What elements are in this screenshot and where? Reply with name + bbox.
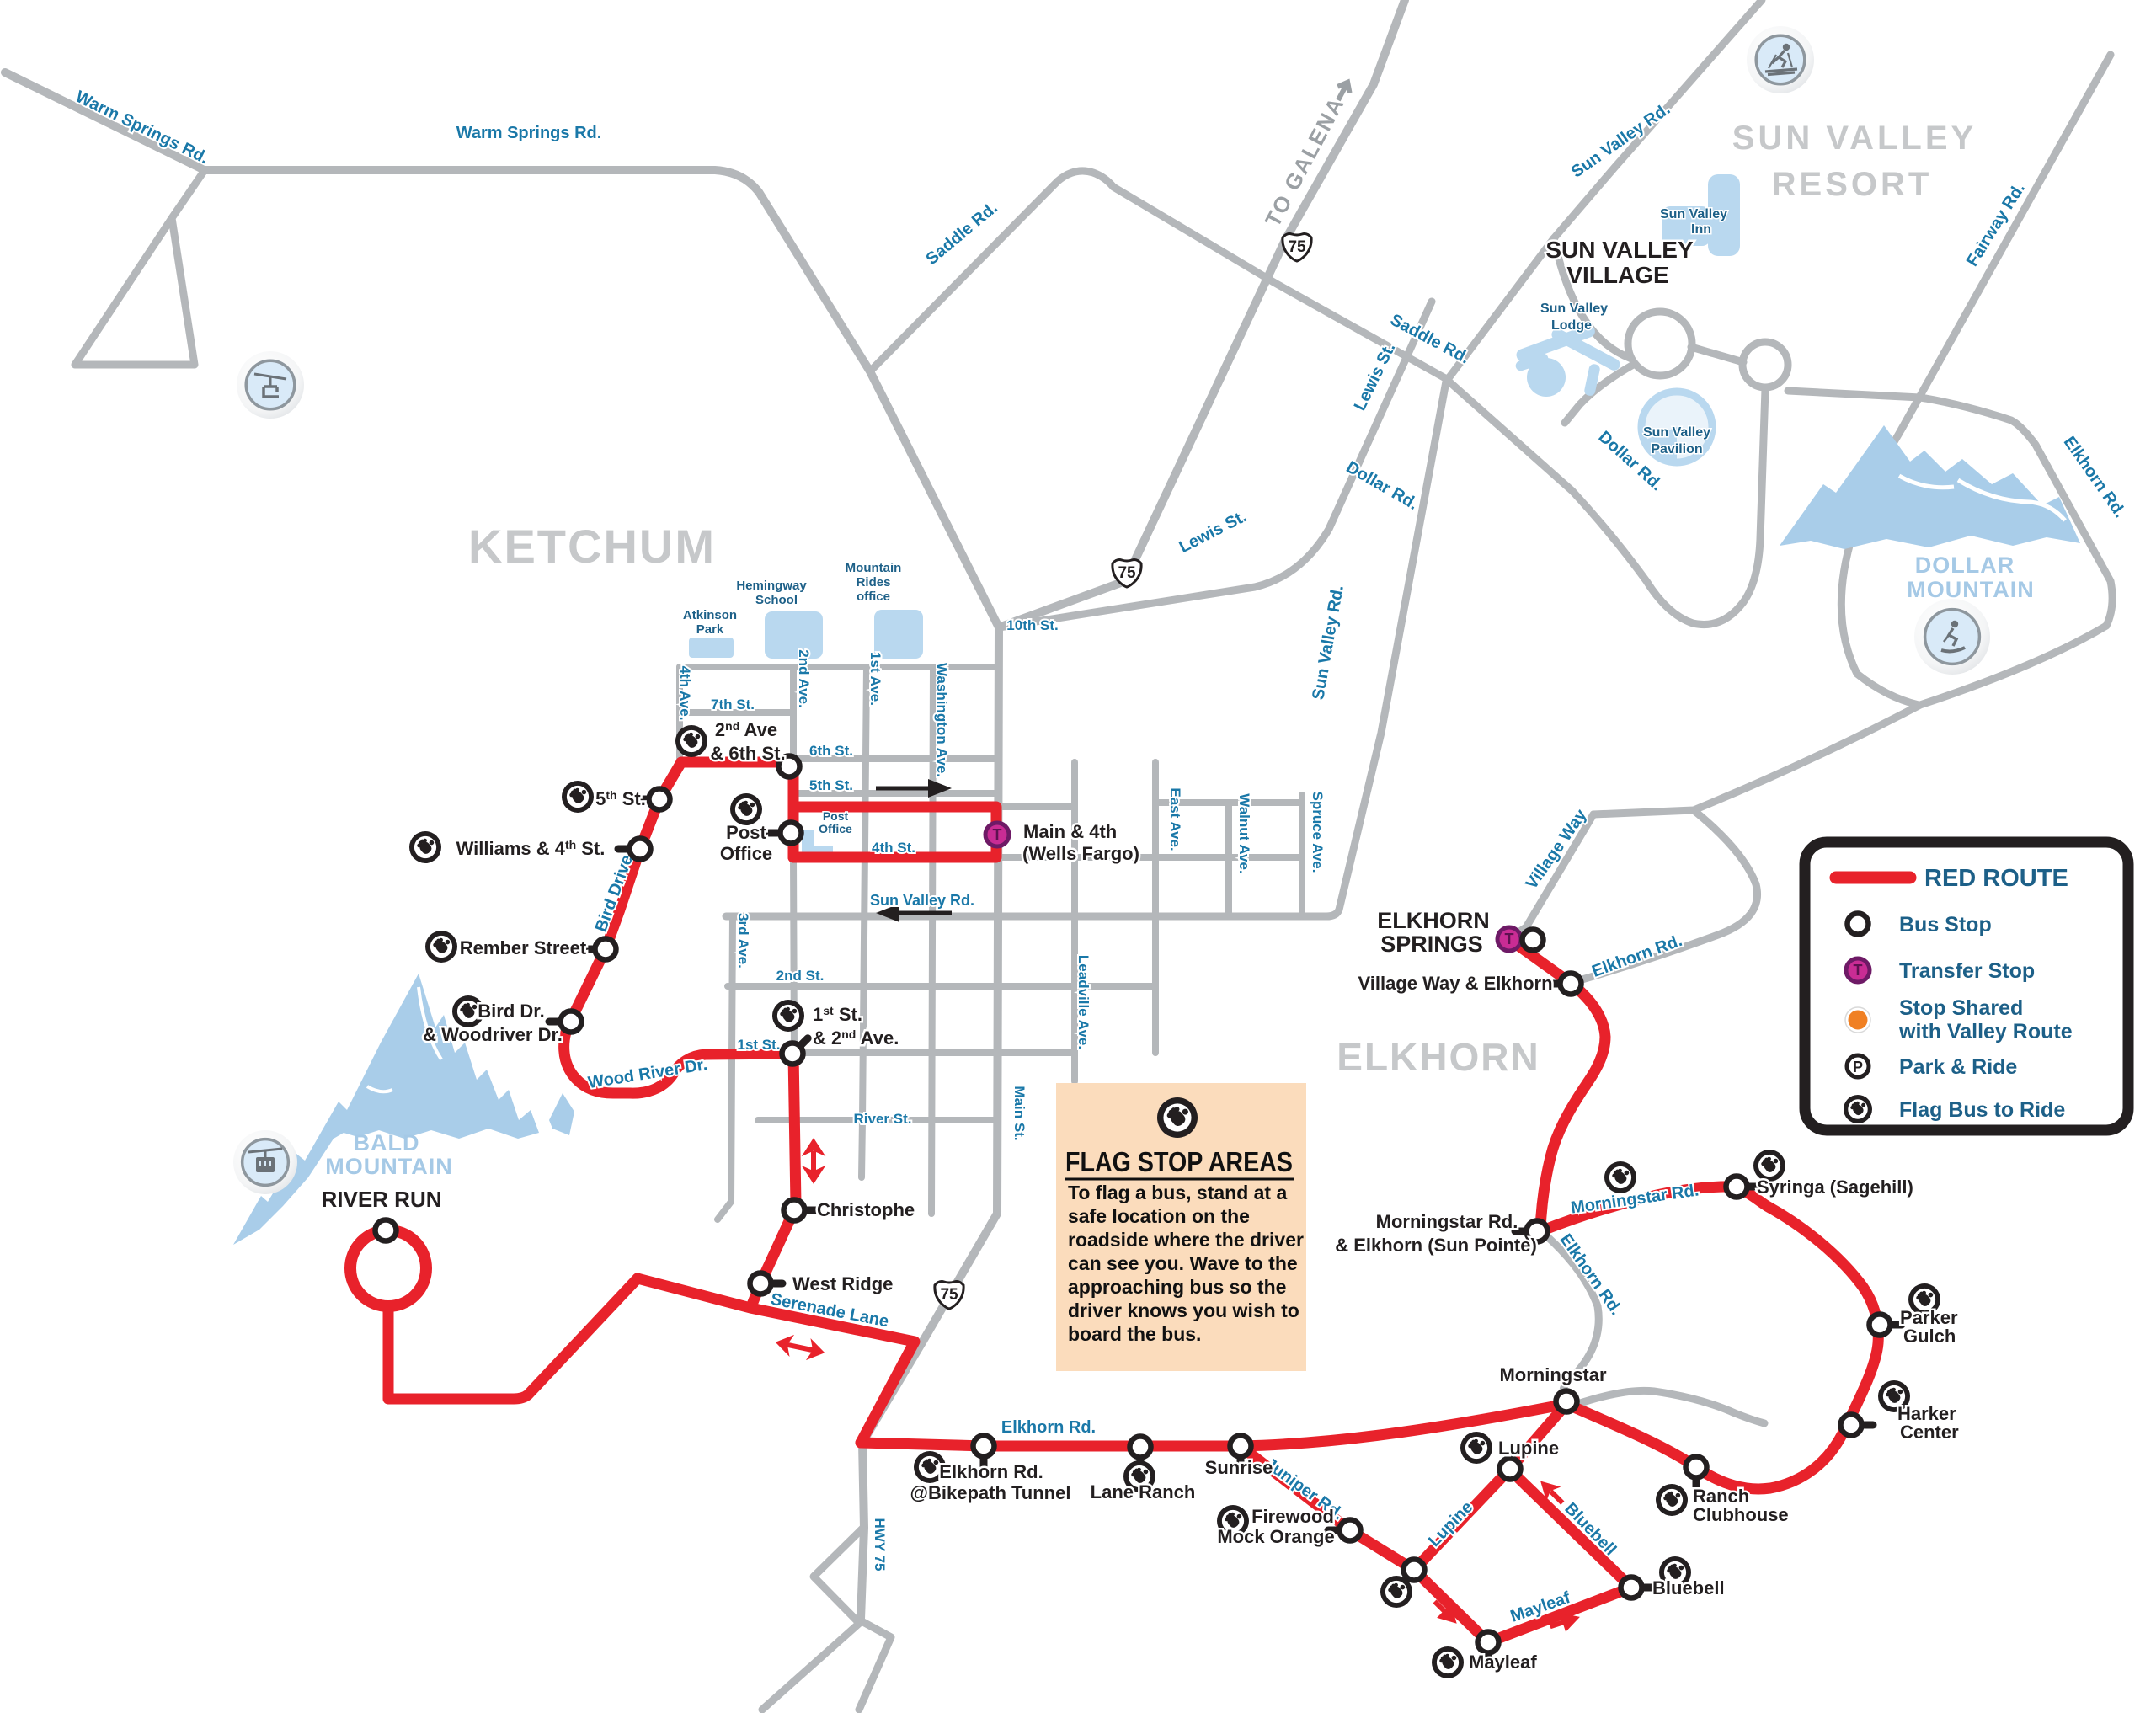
svg-text:roadside where the driver: roadside where the driver bbox=[1068, 1229, 1304, 1251]
svg-text:T: T bbox=[993, 826, 1002, 843]
svg-text:75: 75 bbox=[940, 1286, 958, 1304]
svg-text:Christophe: Christophe bbox=[817, 1199, 915, 1220]
svg-text:Inn: Inn bbox=[1691, 222, 1711, 237]
svg-text:T: T bbox=[1505, 931, 1514, 947]
svg-text:with Valley Route: with Valley Route bbox=[1898, 1020, 2073, 1043]
svg-text:BALD: BALD bbox=[354, 1130, 420, 1155]
svg-text:3rd Ave.: 3rd Ave. bbox=[735, 913, 751, 969]
svg-text:Lane Ranch: Lane Ranch bbox=[1091, 1481, 1196, 1502]
svg-text:Spruce Ave.: Spruce Ave. bbox=[1310, 791, 1326, 873]
svg-text:MOUNTAIN: MOUNTAIN bbox=[325, 1154, 452, 1179]
svg-text:Morningstar Rd.: Morningstar Rd. bbox=[1376, 1211, 1518, 1232]
svg-text:& 2nd Ave.: & 2nd Ave. bbox=[813, 1027, 899, 1049]
svg-text:Main St.: Main St. bbox=[1011, 1086, 1027, 1140]
svg-text:75: 75 bbox=[1118, 564, 1136, 582]
svg-text:2nd St.: 2nd St. bbox=[776, 968, 825, 984]
svg-text:Mock Orange: Mock Orange bbox=[1217, 1526, 1334, 1547]
svg-text:board the bus.: board the bus. bbox=[1068, 1323, 1201, 1345]
svg-text:SUN VALLEY: SUN VALLEY bbox=[1545, 237, 1694, 263]
svg-text:Clubhouse: Clubhouse bbox=[1693, 1504, 1789, 1525]
svg-text:Rember Street: Rember Street bbox=[460, 937, 587, 958]
svg-text:2nd Ave.: 2nd Ave. bbox=[796, 649, 812, 708]
svg-text:4th Ave.: 4th Ave. bbox=[677, 666, 693, 721]
svg-text:driver knows you wish to: driver knows you wish to bbox=[1068, 1299, 1299, 1321]
svg-text:RIVER RUN: RIVER RUN bbox=[321, 1187, 441, 1212]
svg-text:River St.: River St. bbox=[854, 1111, 912, 1127]
svg-text:5th St.: 5th St. bbox=[809, 777, 853, 793]
svg-text:Leadville Ave.: Leadville Ave. bbox=[1075, 955, 1091, 1049]
svg-text:Bus Stop: Bus Stop bbox=[1899, 913, 1992, 937]
svg-text:Syringa (Sagehill): Syringa (Sagehill) bbox=[1757, 1177, 1913, 1198]
svg-text:1st St.: 1st St. bbox=[813, 1004, 862, 1025]
svg-text:Flag Bus to Ride: Flag Bus to Ride bbox=[1899, 1098, 2065, 1122]
svg-text:& Woodriver Dr.: & Woodriver Dr. bbox=[423, 1024, 563, 1045]
svg-text:Transfer Stop: Transfer Stop bbox=[1899, 959, 2035, 983]
svg-text:Hemingway: Hemingway bbox=[736, 579, 807, 593]
svg-text:(Wells Fargo): (Wells Fargo) bbox=[1022, 843, 1139, 864]
svg-text:Bluebell: Bluebell bbox=[1652, 1577, 1725, 1598]
svg-text:East Ave.: East Ave. bbox=[1167, 787, 1183, 851]
svg-text:Firewood: Firewood bbox=[1251, 1506, 1334, 1527]
svg-text:Main & 4th: Main & 4th bbox=[1023, 821, 1117, 842]
svg-text:T: T bbox=[1854, 962, 1863, 979]
svg-text:RED ROUTE: RED ROUTE bbox=[1924, 865, 2068, 892]
svg-text:Lupine: Lupine bbox=[1498, 1438, 1559, 1459]
svg-text:Washington Ave.: Washington Ave. bbox=[934, 663, 950, 777]
svg-text:Stop Shared: Stop Shared bbox=[1899, 996, 2023, 1020]
svg-text:Sunrise: Sunrise bbox=[1205, 1457, 1273, 1478]
svg-text:Village Way & Elkhorn: Village Way & Elkhorn bbox=[1358, 973, 1552, 994]
svg-text:Post: Post bbox=[726, 822, 766, 843]
svg-text:Lodge: Lodge bbox=[1551, 318, 1592, 333]
svg-text:School: School bbox=[755, 593, 798, 607]
svg-text:Atkinson: Atkinson bbox=[683, 608, 737, 622]
svg-text:Mountain: Mountain bbox=[846, 561, 902, 575]
svg-text:Sun Valley: Sun Valley bbox=[1660, 207, 1727, 221]
svg-text:ELKHORN: ELKHORN bbox=[1337, 1035, 1540, 1079]
svg-text:Gulch: Gulch bbox=[1903, 1326, 1956, 1347]
svg-text:SPRINGS: SPRINGS bbox=[1380, 931, 1483, 957]
svg-text:Sun Valley Rd.: Sun Valley Rd. bbox=[870, 892, 974, 909]
svg-text:@Bikepath Tunnel: @Bikepath Tunnel bbox=[910, 1482, 1071, 1503]
svg-text:West Ridge: West Ridge bbox=[792, 1273, 893, 1294]
svg-text:Post: Post bbox=[823, 809, 849, 823]
svg-text:can see you. Wave to the: can see you. Wave to the bbox=[1068, 1252, 1298, 1274]
svg-text:Sun Valley: Sun Valley bbox=[1643, 425, 1710, 440]
svg-text:Mayleaf: Mayleaf bbox=[1469, 1652, 1537, 1673]
svg-text:Pavilion: Pavilion bbox=[1651, 442, 1702, 456]
svg-text:Park: Park bbox=[696, 622, 724, 637]
svg-text:Warm Springs Rd.: Warm Springs Rd. bbox=[456, 124, 602, 142]
svg-text:safe location on the: safe location on the bbox=[1068, 1205, 1250, 1227]
svg-text:To flag a bus, stand at a: To flag a bus, stand at a bbox=[1068, 1182, 1287, 1203]
svg-text:& 6th St.: & 6th St. bbox=[710, 743, 785, 764]
svg-text:P: P bbox=[1853, 1059, 1863, 1075]
svg-text:office: office bbox=[857, 590, 890, 604]
svg-text:Bird Dr.: Bird Dr. bbox=[478, 1001, 544, 1022]
svg-text:& Elkhorn (Sun Pointe): & Elkhorn (Sun Pointe) bbox=[1335, 1235, 1537, 1256]
svg-text:Office: Office bbox=[819, 822, 852, 835]
svg-text:Office: Office bbox=[720, 843, 772, 864]
svg-text:Walnut Ave.: Walnut Ave. bbox=[1236, 793, 1252, 873]
svg-text:FLAG STOP AREAS: FLAG STOP AREAS bbox=[1065, 1146, 1293, 1177]
svg-text:5th St.: 5th St. bbox=[595, 788, 646, 809]
svg-text:Sun Valley: Sun Valley bbox=[1540, 302, 1608, 316]
svg-text:Williams & 4th St.: Williams & 4th St. bbox=[456, 838, 606, 859]
svg-text:RESORT: RESORT bbox=[1772, 166, 1933, 203]
svg-text:Elkhorn Rd.: Elkhorn Rd. bbox=[1001, 1418, 1096, 1437]
svg-text:SUN VALLEY: SUN VALLEY bbox=[1732, 120, 1977, 157]
svg-text:MOUNTAIN: MOUNTAIN bbox=[1907, 577, 2034, 602]
svg-text:Park & Ride: Park & Ride bbox=[1899, 1055, 2017, 1079]
svg-text:DOLLAR: DOLLAR bbox=[1915, 552, 2015, 578]
svg-text:HWY 75: HWY 75 bbox=[872, 1518, 888, 1572]
svg-text:KETCHUM: KETCHUM bbox=[468, 520, 716, 573]
svg-text:ELKHORN: ELKHORN bbox=[1377, 908, 1490, 933]
svg-text:4th St.: 4th St. bbox=[872, 840, 915, 856]
svg-text:75: 75 bbox=[1288, 238, 1306, 256]
svg-text:VILLAGE: VILLAGE bbox=[1566, 262, 1668, 288]
svg-text:Elkhorn Rd.: Elkhorn Rd. bbox=[939, 1461, 1043, 1482]
svg-text:2nd Ave: 2nd Ave bbox=[715, 719, 777, 740]
svg-text:1st Ave.: 1st Ave. bbox=[867, 652, 883, 706]
svg-text:10th St.: 10th St. bbox=[1006, 617, 1058, 633]
svg-text:Center: Center bbox=[1900, 1422, 1959, 1443]
svg-text:6th St.: 6th St. bbox=[809, 743, 853, 759]
svg-text:Rides: Rides bbox=[857, 575, 891, 590]
svg-text:Morningstar: Morningstar bbox=[1499, 1364, 1607, 1385]
svg-text:1st St.: 1st St. bbox=[737, 1037, 780, 1053]
svg-text:approaching bus so the: approaching bus so the bbox=[1068, 1276, 1286, 1298]
svg-text:7th St.: 7th St. bbox=[711, 696, 755, 712]
